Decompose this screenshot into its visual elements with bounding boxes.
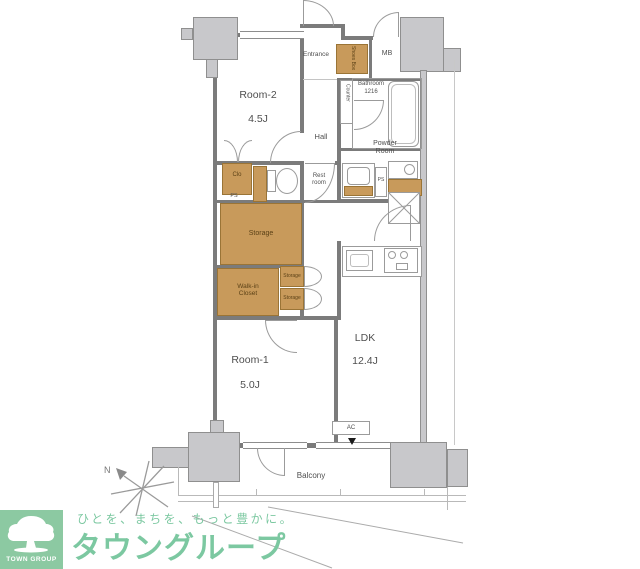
washing-machine-drum — [404, 164, 415, 175]
entry-marker-icon — [348, 438, 356, 445]
pillar — [188, 432, 240, 482]
window — [240, 31, 304, 39]
closet-door-arc — [238, 140, 252, 162]
outer-line-right — [454, 60, 455, 445]
room1-size: 5.0J — [216, 379, 284, 391]
walk-in-line1: Walk-in — [237, 283, 258, 290]
powder-room-label: Powder Room — [363, 140, 407, 156]
north-arrow-icon — [116, 468, 127, 480]
wall-segment — [337, 241, 341, 320]
toilet-tank-icon — [267, 170, 276, 192]
wall-segment — [300, 33, 304, 133]
pipe-space: PS — [375, 167, 387, 197]
toilet-bowl-icon — [276, 168, 298, 194]
stove-burner — [388, 251, 396, 259]
closet-label: Clo — [223, 172, 251, 179]
compass-and-boundary: N — [0, 0, 640, 569]
ldk-size: 12.4J — [338, 355, 392, 367]
pillar — [447, 449, 468, 487]
balcony-door-arc — [257, 448, 285, 476]
balcony-rail-post — [447, 487, 448, 510]
bathroom-size: 1216 — [352, 89, 390, 96]
walk-in-line2: Closet — [239, 290, 257, 297]
rest-line1: Rest — [313, 173, 325, 179]
balcony-partition — [213, 482, 219, 508]
rest-line2: room — [312, 180, 326, 186]
room1-name: Room-1 — [216, 354, 284, 366]
stove-burner — [400, 251, 408, 259]
storage-lower-label: Storage — [281, 296, 303, 302]
ps-powder-label: PS — [376, 178, 386, 184]
kitchen-sink-bowl — [350, 254, 369, 267]
bathroom-label: Bathroom — [352, 81, 390, 88]
pillar — [193, 17, 238, 60]
brand-badge-text: TOWN GROUP — [0, 556, 63, 563]
pillar — [206, 59, 218, 78]
shoes-box-label: Shoes Box — [349, 46, 355, 70]
powder-line1: Powder — [373, 140, 397, 147]
ldk-door-arc — [374, 205, 411, 241]
balcony-rail — [178, 495, 466, 496]
storage-upper-label: Storage — [281, 274, 303, 280]
room2-door-arc — [270, 131, 301, 163]
counter-label: Counter — [344, 84, 350, 102]
balcony-rail — [178, 501, 466, 502]
mb-door-arc — [373, 12, 399, 37]
stove-grill — [396, 263, 408, 270]
powder-line2: Room — [376, 148, 395, 155]
hall-label: Hall — [306, 133, 336, 142]
walk-in-closet: Walk-in Closet — [217, 268, 279, 316]
room2-name: Room-2 — [225, 89, 291, 101]
ac-label: AC — [333, 425, 369, 432]
balcony-rail-post — [178, 467, 179, 496]
entrance-label: Entrance — [293, 51, 339, 58]
pillar — [152, 447, 189, 468]
storage-main-label: Storage — [221, 230, 301, 238]
pillar — [400, 17, 444, 72]
logo-tree-icon — [0, 510, 63, 554]
balcony-rail-tick — [340, 489, 341, 495]
entrance-step-line — [303, 79, 337, 80]
ac-box: AC — [332, 421, 370, 435]
washbasin-bowl — [347, 167, 370, 185]
storage-main: Storage — [220, 203, 302, 265]
washbasin-shelf — [344, 186, 373, 196]
rest-room-label: Rest room — [302, 173, 336, 187]
brand-name: タウングループ — [71, 523, 286, 567]
closet-door-arc — [224, 140, 238, 162]
pillar — [181, 28, 193, 40]
floorplan-canvas: Shoes Box Clo Storage Walk-in Closet Sto… — [0, 0, 640, 569]
pillar — [390, 442, 447, 488]
folding-door — [304, 288, 322, 310]
pillar — [443, 48, 461, 72]
balcony-rail-tick — [424, 489, 425, 495]
entrance-door-arc — [303, 0, 334, 26]
storage-upper: Storage — [280, 266, 304, 287]
storage-lower: Storage — [280, 288, 304, 310]
balcony-rail-tick — [256, 489, 257, 495]
room2-size: 4.5J — [225, 113, 291, 125]
ldk-name: LDK — [338, 332, 392, 344]
ps-hall-label: PS — [224, 193, 244, 199]
balcony-label: Balcony — [288, 471, 334, 480]
closet-box: Clo — [222, 163, 252, 195]
walk-in-closet-label: Walk-in Closet — [218, 283, 278, 298]
boundary-line — [268, 507, 463, 543]
shoes-box: Shoes Box — [336, 44, 368, 74]
folding-door — [304, 266, 322, 287]
brand-logo-square: TOWN GROUP — [0, 510, 63, 569]
mb-label: MB — [374, 50, 400, 58]
toilet-cabinet — [253, 166, 267, 202]
wall-segment — [337, 165, 341, 203]
compass-icon — [111, 461, 174, 516]
north-label: N — [104, 465, 111, 475]
bathtub-inner — [391, 84, 416, 144]
room1-door-arc — [265, 320, 297, 353]
wall-segment — [369, 40, 372, 80]
